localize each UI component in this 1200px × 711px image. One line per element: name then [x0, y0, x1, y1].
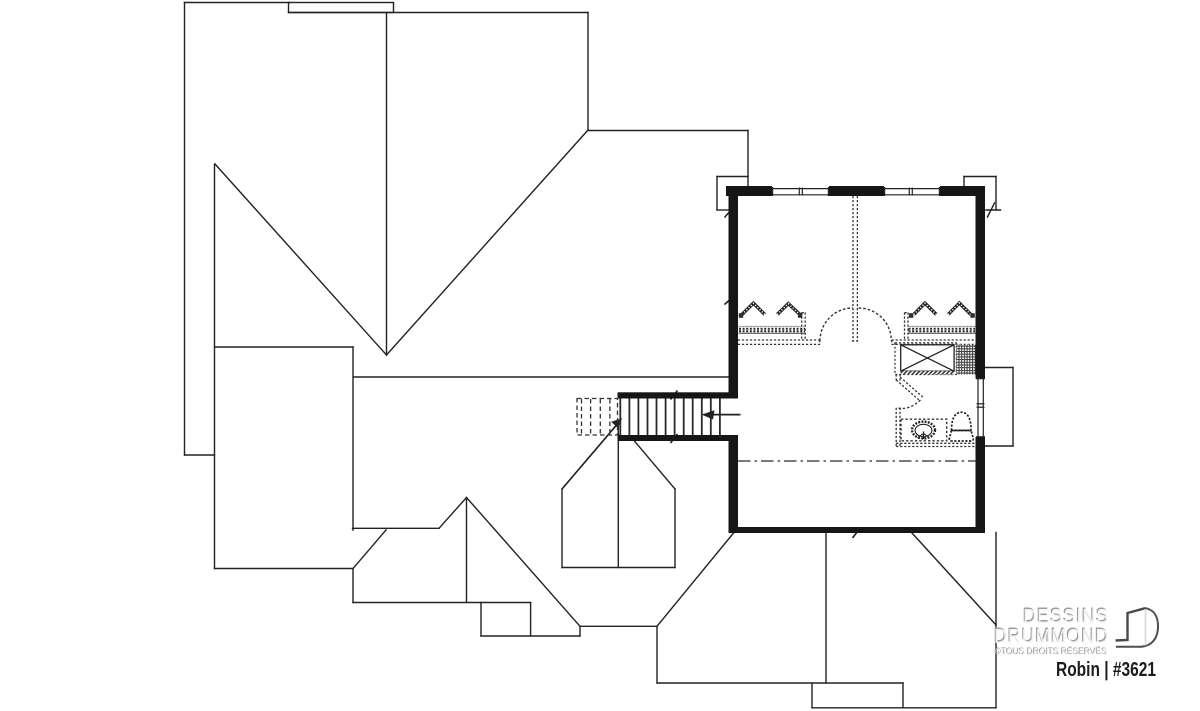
- svg-text:©TOUS DROITS RÉSERVÉS: ©TOUS DROITS RÉSERVÉS: [995, 647, 1107, 658]
- svg-text:Robin | #3621: Robin | #3621: [1056, 659, 1156, 681]
- svg-text:DRUMMOND: DRUMMOND: [994, 626, 1109, 648]
